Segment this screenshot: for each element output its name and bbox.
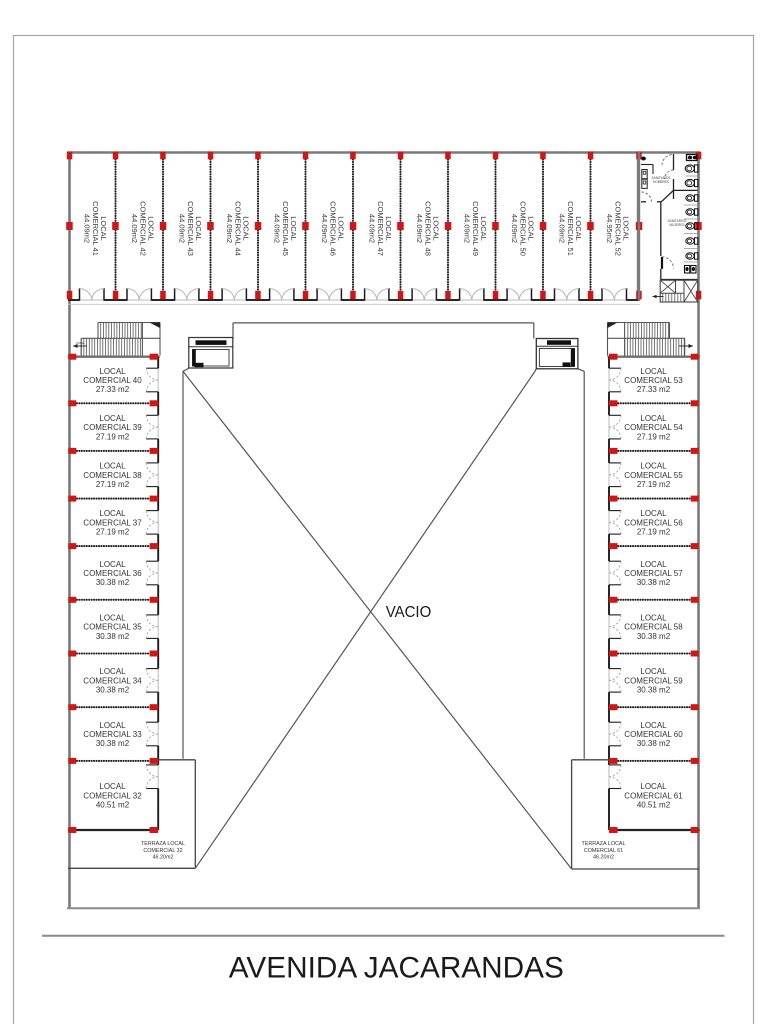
svg-text:27.19 m2: 27.19 m2: [96, 528, 130, 537]
svg-text:LOCAL: LOCAL: [640, 782, 667, 791]
svg-text:COMERCIAL 60: COMERCIAL 60: [624, 730, 683, 739]
svg-text:COMERCIAL 53: COMERCIAL 53: [624, 376, 683, 385]
svg-text:LOCAL: LOCAL: [640, 667, 667, 676]
svg-text:LOCAL: LOCAL: [99, 721, 126, 730]
svg-text:COMERCIAL 37: COMERCIAL 37: [83, 518, 142, 527]
svg-text:44.09m2: 44.09m2: [177, 214, 186, 243]
svg-text:44.09m2: 44.09m2: [130, 214, 139, 243]
svg-text:44.09m2: 44.09m2: [320, 214, 329, 243]
svg-text:COMERCIAL 32: COMERCIAL 32: [83, 792, 142, 801]
svg-text:VACIO: VACIO: [386, 604, 432, 621]
svg-text:30.38 m2: 30.38 m2: [96, 632, 130, 641]
svg-text:COMERCIAL 35: COMERCIAL 35: [83, 623, 142, 632]
svg-text:LOCAL: LOCAL: [99, 613, 126, 622]
svg-text:44.09m2: 44.09m2: [557, 214, 566, 243]
svg-text:LOCAL: LOCAL: [99, 560, 126, 569]
svg-text:TERRAZA LOCAL: TERRAZA LOCAL: [581, 841, 625, 847]
svg-text:LOCAL: LOCAL: [99, 462, 126, 471]
svg-text:LOCAL: LOCAL: [640, 367, 667, 376]
svg-text:44.09m2: 44.09m2: [462, 214, 471, 243]
svg-text:30.38 m2: 30.38 m2: [96, 739, 130, 748]
svg-text:LOCAL: LOCAL: [640, 721, 667, 730]
svg-text:COMERCIAL 38: COMERCIAL 38: [83, 471, 142, 480]
svg-text:27.19 m2: 27.19 m2: [96, 480, 130, 489]
svg-text:30.38 m2: 30.38 m2: [637, 578, 671, 587]
svg-text:44.09m2: 44.09m2: [82, 214, 91, 243]
svg-text:LOCAL: LOCAL: [99, 367, 126, 376]
svg-text:LOCAL: LOCAL: [99, 509, 126, 518]
svg-text:44.09m2: 44.09m2: [367, 214, 376, 243]
svg-text:44.09m2: 44.09m2: [510, 214, 519, 243]
svg-text:COMERCIAL 32: COMERCIAL 32: [143, 848, 182, 854]
svg-text:TERRAZA LOCAL: TERRAZA LOCAL: [141, 841, 185, 847]
svg-text:HOMBRES: HOMBRES: [653, 180, 669, 184]
svg-text:COMERCIAL 57: COMERCIAL 57: [624, 569, 683, 578]
svg-text:46.20m2: 46.20m2: [593, 855, 614, 861]
svg-text:27.19 m2: 27.19 m2: [637, 480, 671, 489]
svg-text:27.33 m2: 27.33 m2: [637, 385, 671, 394]
svg-text:44.09m2: 44.09m2: [225, 214, 234, 243]
svg-text:COMERCIAL 33: COMERCIAL 33: [83, 730, 142, 739]
svg-text:COMERCIAL 61: COMERCIAL 61: [624, 792, 683, 801]
svg-text:MUJERES: MUJERES: [669, 223, 684, 227]
svg-text:40.51 m2: 40.51 m2: [637, 801, 671, 810]
svg-text:LOCAL: LOCAL: [99, 414, 126, 423]
svg-text:46.20m2: 46.20m2: [153, 855, 174, 861]
svg-text:40.51 m2: 40.51 m2: [96, 801, 130, 810]
svg-text:30.38 m2: 30.38 m2: [637, 686, 671, 695]
svg-text:LOCAL: LOCAL: [640, 414, 667, 423]
svg-text:27.19 m2: 27.19 m2: [637, 432, 671, 441]
svg-text:30.38 m2: 30.38 m2: [637, 739, 671, 748]
svg-text:27.19 m2: 27.19 m2: [96, 432, 130, 441]
svg-text:COMERCIAL 59: COMERCIAL 59: [624, 676, 683, 685]
svg-text:44.09m2: 44.09m2: [272, 214, 281, 243]
svg-text:LOCAL: LOCAL: [99, 667, 126, 676]
svg-text:LOCAL: LOCAL: [640, 560, 667, 569]
svg-text:COMERCIAL 40: COMERCIAL 40: [83, 376, 142, 385]
svg-text:COMERCIAL 36: COMERCIAL 36: [83, 569, 142, 578]
svg-text:SUBE: SUBE: [76, 341, 84, 345]
svg-text:44.09m2: 44.09m2: [415, 214, 424, 243]
svg-text:COMERCIAL 54: COMERCIAL 54: [624, 423, 683, 432]
svg-text:30.38 m2: 30.38 m2: [96, 686, 130, 695]
svg-text:LOCAL: LOCAL: [640, 509, 667, 518]
svg-text:COMERCIAL 39: COMERCIAL 39: [83, 423, 142, 432]
svg-text:27.19 m2: 27.19 m2: [637, 528, 671, 537]
svg-text:COMERCIAL 56: COMERCIAL 56: [624, 518, 683, 527]
svg-text:AVENIDA JACARANDAS: AVENIDA JACARANDAS: [229, 952, 564, 985]
svg-text:30.38 m2: 30.38 m2: [96, 578, 130, 587]
svg-text:COMERCIAL 61: COMERCIAL 61: [584, 848, 623, 854]
svg-text:27.33 m2: 27.33 m2: [96, 385, 130, 394]
svg-text:COMERCIAL 34: COMERCIAL 34: [83, 676, 142, 685]
svg-text:30.38 m2: 30.38 m2: [637, 632, 671, 641]
svg-text:44.95m2: 44.95m2: [605, 214, 614, 243]
svg-text:COMERCIAL 55: COMERCIAL 55: [624, 471, 683, 480]
svg-text:COMERCIAL 58: COMERCIAL 58: [624, 623, 683, 632]
svg-text:LOCAL: LOCAL: [640, 613, 667, 622]
svg-text:LOCAL: LOCAL: [640, 462, 667, 471]
svg-text:LOCAL: LOCAL: [99, 782, 126, 791]
